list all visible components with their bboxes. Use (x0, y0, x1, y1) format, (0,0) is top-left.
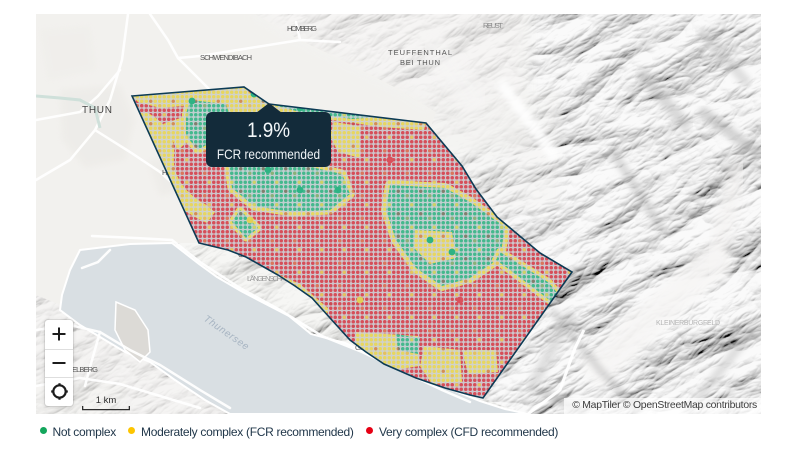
svg-text:THUN: THUN (82, 105, 112, 116)
svg-text:HOMBERG: HOMBERG (287, 24, 317, 33)
svg-text:TEUFFENTHAL: TEUFFENTHAL (388, 48, 452, 57)
svg-text:BEI THUN: BEI THUN (400, 58, 440, 67)
svg-text:KLEINERBURGFELD: KLEINERBURGFELD (656, 320, 720, 327)
svg-text:REUST: REUST (483, 21, 503, 30)
svg-text:ELBERG: ELBERG (72, 365, 98, 374)
svg-text:SCHWENDIBACH: SCHWENDIBACH (200, 53, 252, 62)
